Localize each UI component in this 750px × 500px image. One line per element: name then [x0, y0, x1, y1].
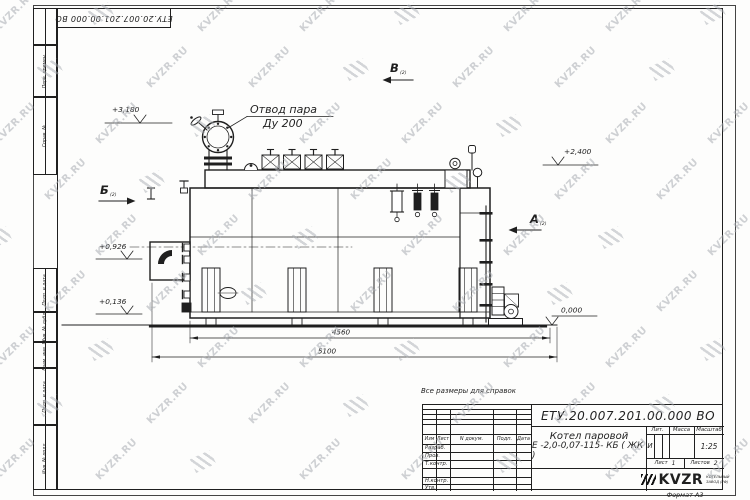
tb-col-izm: Изм — [423, 434, 436, 444]
elevation-0136: +0,136 — [99, 297, 127, 306]
tb-col-podp: Подп. — [493, 434, 516, 444]
dim-4560: 4560 — [332, 328, 351, 337]
elevation-0926: +0,926 — [99, 242, 127, 251]
steam-drum-band — [205, 170, 470, 188]
rear-pump-unit — [489, 287, 523, 325]
tb-mass-header: Масса — [669, 426, 694, 434]
dimension-arrows — [152, 336, 557, 358]
tb-lit-header: Лит. — [646, 426, 669, 434]
elevation-3180: +3,180 — [112, 105, 140, 114]
view-label-v: В — [390, 61, 399, 75]
boiler-body — [190, 188, 490, 318]
tb-logo-cell: KVZR КОТЕЛЬНЫЙ ЗАВОД (РФ) — [646, 468, 724, 491]
boiler-linework — [62, 77, 598, 363]
tb-row-prov: Пров. — [423, 452, 450, 460]
tb-row-razrab: Разраб. — [423, 444, 450, 452]
title-block: ЕТУ.20.007.201.00.000 ВО Котел паровой Е… — [422, 404, 723, 490]
tb-product-name-2: Е -2,0-0,07-115- КБ ( ЖК ) — [532, 443, 646, 458]
dim-5100: 5100 — [318, 347, 337, 356]
front-wall-fittings — [148, 181, 192, 312]
kvzr-stripes-icon — [641, 474, 656, 485]
kvzr-logo-text: KVZR — [659, 472, 704, 488]
view-label-v-sub: (2) — [400, 70, 407, 76]
support-legs — [202, 268, 477, 325]
tb-scale-header: Масштаб — [694, 426, 724, 434]
tb-sheet-cell: Лист1 — [646, 458, 684, 468]
drawing-sheet: ЕТУ.20.007.201.00.000 ВО Перв. примен. С… — [0, 0, 750, 500]
view-label-b: Б — [100, 183, 109, 197]
tb-col-data: Дата — [516, 434, 531, 444]
tb-doc-number: ЕТУ.20.007.201.00.000 ВО — [532, 405, 724, 426]
tb-col-list: Лист — [436, 434, 450, 444]
format-label: Формат А3 — [645, 490, 725, 499]
elevation-marks — [96, 115, 598, 325]
top-hatches — [262, 150, 344, 170]
callout-leader — [228, 117, 247, 129]
view-label-b-sub: (2) — [110, 192, 117, 198]
tb-row-utv: Утв. — [423, 484, 450, 491]
feed-platform — [445, 146, 482, 189]
tb-lit-value: И — [646, 434, 654, 458]
callout-steam-outlet: Отвод пара — [250, 103, 317, 116]
steam-outlet-valve — [190, 110, 234, 170]
kvzr-logo-subtext: КОТЕЛЬНЫЙ ЗАВОД (РФ) — [706, 475, 729, 484]
elevation-2400: +2,400 — [564, 147, 592, 156]
view-label-a-sub: (2) — [540, 221, 547, 227]
elevation-0000: 0,000 — [561, 306, 582, 315]
tb-scale-value: 1:25 — [694, 434, 724, 458]
tb-sheets-cell: Листов2 — [684, 458, 724, 468]
tb-col-ndoc: N докум. — [450, 434, 493, 444]
reference-note: Все размеры для справок — [421, 387, 516, 395]
callout-dn200: Ду 200 — [262, 117, 303, 130]
level-gauges — [391, 184, 440, 222]
tb-row-nkontr: Н.контр. — [423, 477, 450, 484]
safety-lever — [469, 146, 476, 154]
burner — [158, 250, 172, 264]
view-label-a: А — [529, 212, 539, 226]
tb-row-tkontr: Т.контр. — [423, 460, 450, 468]
